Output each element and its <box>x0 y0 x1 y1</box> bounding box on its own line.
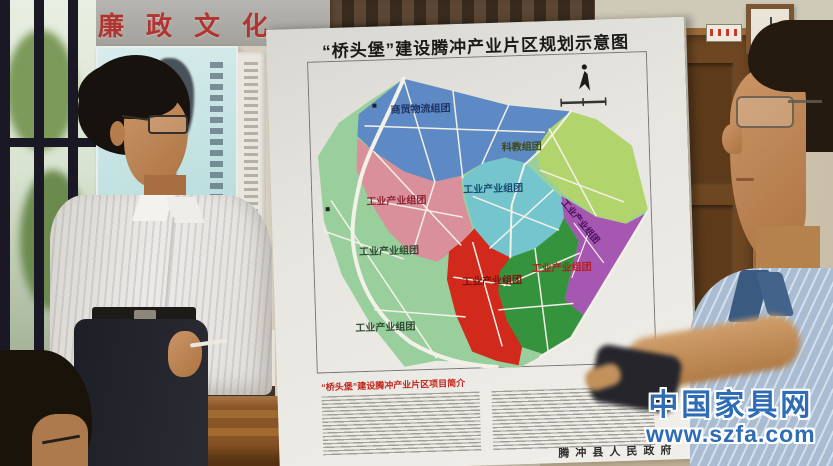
north-arrow-icon <box>578 64 590 91</box>
map-marker <box>326 207 330 211</box>
scale-bar-icon <box>560 97 606 106</box>
man-left-ear <box>110 121 125 146</box>
man-left-glasses <box>148 115 188 134</box>
banner-text: 廉政文化 <box>98 6 290 43</box>
man-right-lips <box>736 178 754 181</box>
watermark-url: www.szfa.com <box>646 422 816 446</box>
photo-scene: 廉政文化 <box>0 0 833 466</box>
man-right-nose <box>722 124 742 154</box>
man-right-hair-top <box>748 22 833 92</box>
man-right-glasses-temple <box>788 100 822 103</box>
label-science: 科教组团 <box>502 139 542 153</box>
label-industry-lightgreen-lower: 工业产业组团 <box>355 319 415 334</box>
person-bottom-left <box>0 350 100 466</box>
watermark: 中国家具网 www.szfa.com <box>646 390 816 446</box>
map-marker <box>372 104 376 108</box>
man-right-glasses <box>736 96 794 128</box>
intro-text-column <box>322 391 482 456</box>
intro-title: “桥头堡”建设腾冲产业片区项目简介 <box>321 376 465 394</box>
watermark-title: 中国家具网 <box>646 390 816 422</box>
man-left-hand <box>168 331 202 377</box>
